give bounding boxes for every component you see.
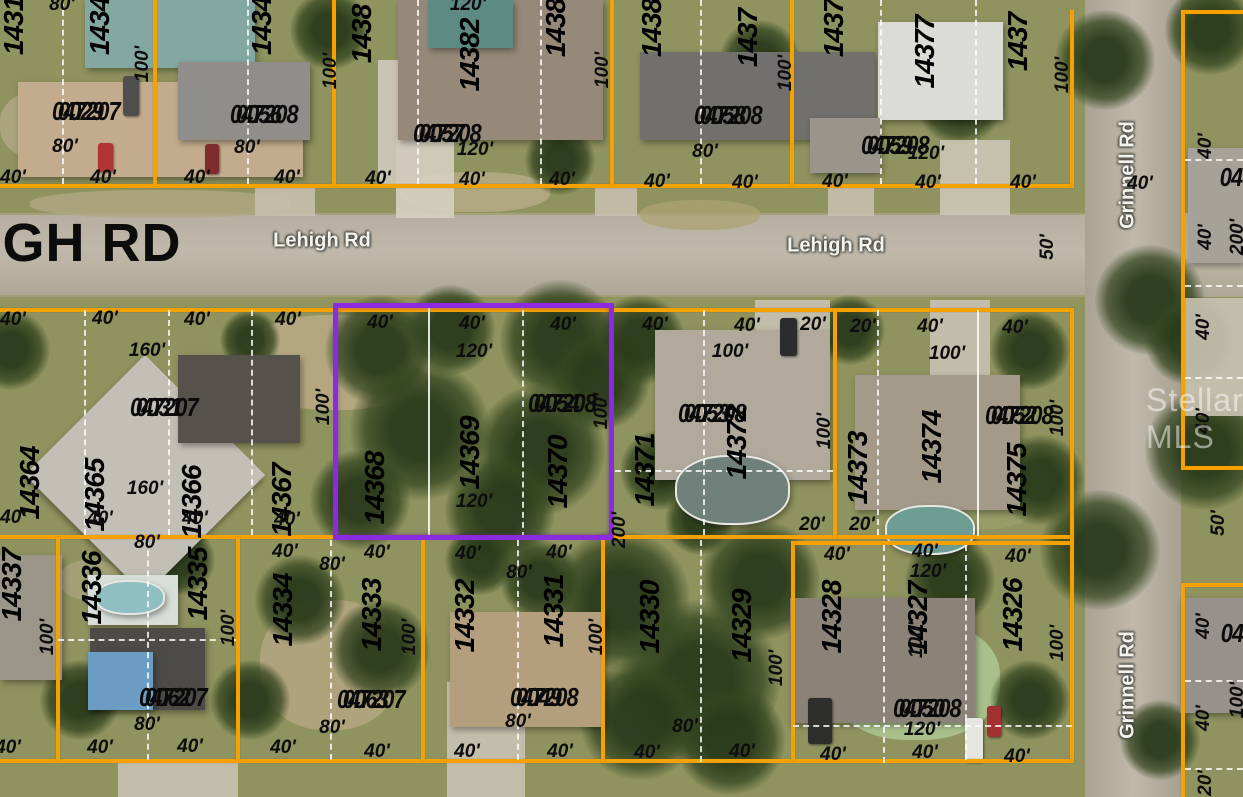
parcel-map-viewport[interactable]: GH RDLehigh RdLehigh RdGrinnell RdGrinne… <box>0 0 1243 797</box>
lot-line <box>700 540 702 762</box>
dimension-label: 40' <box>184 167 210 189</box>
dimension-label: 40' <box>274 509 300 531</box>
parcel-boundary-line <box>1181 583 1185 797</box>
dimension-label: 100' <box>766 650 788 686</box>
dimension-label: 40' <box>642 314 668 336</box>
dimension-label: 40' <box>1193 705 1215 731</box>
parcel-boundary-line <box>1183 10 1243 14</box>
dimension-label: 100' <box>313 389 335 425</box>
lot-line <box>58 639 236 641</box>
parcel-boundary-line <box>153 0 157 186</box>
scenery-item <box>780 318 797 356</box>
dimension-label: 40' <box>177 736 203 758</box>
dimension-label: 100' <box>712 341 748 363</box>
dimension-label: 100' <box>399 619 421 655</box>
dimension-label: 40' <box>1004 746 1030 768</box>
dimension-label: 40' <box>364 542 390 564</box>
lot-number-label: 1438 <box>346 5 378 63</box>
road-label: Grinnell Rd <box>1117 631 1140 739</box>
dimension-label: 40' <box>184 309 210 331</box>
dimension-label: 40' <box>275 309 301 331</box>
lot-line <box>168 310 170 535</box>
dimension-label: 20' <box>799 514 825 536</box>
lot-number-label: 14375 <box>1001 444 1033 517</box>
dimension-label: 40' <box>547 741 573 763</box>
lot-line <box>975 0 977 184</box>
lot-number-label: 14371 <box>629 434 661 507</box>
dimension-label: 100' <box>592 52 614 88</box>
dimension-label: 160' <box>129 340 165 362</box>
dimension-label: 40' <box>1195 224 1217 250</box>
lot-number-label: 14336 <box>76 552 108 625</box>
lot-number-label: 1438 <box>540 0 572 57</box>
dimension-label: 20' <box>1195 770 1217 796</box>
dimension-label: 40' <box>364 741 390 763</box>
dimension-label: 40' <box>270 737 296 759</box>
lot-line <box>1185 159 1243 161</box>
dimension-label: 80' <box>234 137 260 159</box>
parcel-boundary-line <box>610 0 614 186</box>
dimension-label: 40' <box>546 542 572 564</box>
dimension-label: 40' <box>365 168 391 190</box>
dimension-label: 40' <box>272 541 298 563</box>
dimension-label: 120' <box>910 561 946 583</box>
dimension-label: 120' <box>450 0 486 16</box>
parcel-boundary-line <box>0 184 1074 188</box>
dimension-label: 40' <box>274 167 300 189</box>
dimension-label: 40' <box>1193 314 1215 340</box>
dimension-label: 40' <box>917 316 943 338</box>
parcel-id-label-partial: 04 <box>1220 162 1243 192</box>
dimension-label: 40' <box>1005 546 1031 568</box>
dimension-label: 120' <box>456 491 492 513</box>
lot-number-label: 14368 <box>359 452 391 525</box>
lot-number-label: 1431 <box>0 0 30 55</box>
dimension-label: 80' <box>52 136 78 158</box>
lot-number-label: 14334 <box>267 574 299 647</box>
parcel-boundary-line <box>1182 583 1243 587</box>
dimension-label: 40' <box>550 314 576 336</box>
dimension-label: 40' <box>732 172 758 194</box>
scenery-item <box>640 200 760 230</box>
dimension-label: 100' <box>1052 57 1074 93</box>
lot-number-label: 1434 <box>246 0 278 55</box>
dimension-label: 40' <box>644 171 670 193</box>
dimension-label: 80' <box>506 562 532 584</box>
dimension-label: 40' <box>0 507 26 529</box>
lot-number-label: 14335 <box>182 548 214 621</box>
lot-line <box>251 310 253 535</box>
parcel-boundary-line <box>790 0 794 186</box>
dimension-label: 50' <box>1037 234 1059 260</box>
dimension-label: 120' <box>456 341 492 363</box>
parcel-boundary-line <box>236 537 240 761</box>
dimension-label: 40' <box>1002 317 1028 339</box>
dimension-label: 200' <box>609 512 631 548</box>
dimension-label: 100' <box>591 393 613 429</box>
dimension-label: 40' <box>0 737 21 759</box>
lot-number-label: 14372 <box>721 407 753 480</box>
lot-number-label: 14332 <box>449 580 481 653</box>
dimension-label: 40' <box>459 169 485 191</box>
dimension-label: 80' <box>692 141 718 163</box>
lot-number-label: 14326 <box>997 579 1029 652</box>
parcel-id-line2: 0062 <box>145 682 190 712</box>
dimension-label: 50' <box>1208 510 1230 536</box>
scenery-item <box>808 698 832 744</box>
dimension-label: 100' <box>586 619 608 655</box>
dimension-label: 80' <box>319 554 345 576</box>
lot-number-label: 1437 <box>818 0 850 57</box>
parcel-id-line2: 0063 <box>343 684 388 714</box>
scenery-item <box>118 763 238 797</box>
parcel-id-line2: 0056 <box>236 99 281 129</box>
dimension-label: 40' <box>1127 173 1153 195</box>
dimension-label: 160' <box>127 478 163 500</box>
lot-number-label: 14333 <box>356 579 388 652</box>
dimension-label: 40' <box>182 508 208 530</box>
lot-line <box>1185 377 1243 379</box>
parcel-id-line2: 0052 <box>991 400 1036 430</box>
lot-number-label: 14382 <box>454 19 486 92</box>
lot-line <box>977 310 979 536</box>
dimension-label: 40' <box>549 169 575 191</box>
lot-number-label: 1437 <box>1002 13 1034 71</box>
dimension-label: 40' <box>915 172 941 194</box>
lot-number-label: 14331 <box>538 575 570 648</box>
lot-number-label: 14328 <box>816 581 848 654</box>
parcel-boundary-line <box>1183 466 1243 470</box>
dimension-label: 100' <box>1227 682 1243 718</box>
dimension-label: 40' <box>90 167 116 189</box>
dimension-label: 80' <box>319 717 345 739</box>
scenery-item <box>255 188 315 216</box>
dimension-label: 40' <box>367 312 393 334</box>
road-label: Lehigh Rd <box>787 235 885 258</box>
dimension-label: 40' <box>454 741 480 763</box>
dimension-label: 120' <box>908 143 944 165</box>
dimension-label: 200' <box>1227 219 1243 255</box>
parcel-id-line2: 0058 <box>700 100 745 130</box>
lot-number-label: 14377 <box>909 16 941 89</box>
lot-number-label: 14329 <box>726 590 758 663</box>
lot-number-label: 14369 <box>454 417 486 490</box>
lot-line <box>1185 285 1243 287</box>
dimension-label: 100' <box>814 413 836 449</box>
scenery-item <box>210 660 290 740</box>
parcel-boundary-line <box>1070 10 1074 186</box>
dimension-label: 40' <box>734 315 760 337</box>
lot-number-label: 14373 <box>842 432 874 505</box>
lot-line <box>417 0 419 184</box>
dimension-label: 100' <box>1047 625 1069 661</box>
lot-number-label: 14337 <box>0 549 28 622</box>
dimension-label: 40' <box>1195 133 1217 159</box>
dimension-label: 40' <box>1010 172 1036 194</box>
dimension-label: 40' <box>0 167 26 189</box>
scenery-item <box>675 685 785 795</box>
dimension-label: 100' <box>906 622 928 658</box>
parcel-boundary-line <box>1070 308 1074 539</box>
dimension-label: 100' <box>37 619 59 655</box>
parcel-id-line2: 0059 <box>867 130 912 160</box>
lot-number-label: 14330 <box>634 581 666 654</box>
dimension-label: 80' <box>672 716 698 738</box>
dimension-label: 20' <box>800 314 826 336</box>
parcel-boundary-line <box>791 541 795 761</box>
lot-line <box>877 310 879 535</box>
lot-number-label: 1438 <box>636 0 668 57</box>
lot-number-label: 1434 <box>84 0 116 55</box>
parcel-boundary-line <box>1070 538 1074 761</box>
scenery-item <box>987 706 1001 737</box>
lot-number-label: 14374 <box>916 411 948 484</box>
parcel-id-line2: 0049 <box>516 682 561 712</box>
dimension-label: 120' <box>904 719 940 741</box>
parcel-id-label-partial: 04 <box>1221 618 1243 648</box>
parcel-id-line2: 0029 <box>58 96 103 126</box>
dimension-label: 40' <box>455 543 481 565</box>
dimension-label: 40' <box>87 737 113 759</box>
road-label: Lehigh Rd <box>273 230 371 253</box>
dimension-label: 80' <box>134 532 160 554</box>
dimension-label: 100' <box>132 46 154 82</box>
dimension-label: 40' <box>92 308 118 330</box>
dimension-label: 100' <box>1047 400 1069 436</box>
dimension-label: 40' <box>0 309 26 331</box>
scenery-item <box>990 660 1070 740</box>
dimension-label: 40' <box>820 744 846 766</box>
parcel-id-line2: 0031 <box>136 392 181 422</box>
lot-number-label: 14370 <box>542 436 574 509</box>
dimension-label: 120' <box>457 139 493 161</box>
dimension-label: 40' <box>822 171 848 193</box>
dimension-label: 100' <box>218 610 240 646</box>
dimension-label: 80' <box>134 714 160 736</box>
dimension-label: 40' <box>1193 613 1215 639</box>
dimension-label: 40' <box>912 742 938 764</box>
lot-line <box>965 545 967 760</box>
dimension-label: 40' <box>459 313 485 335</box>
parcel-boundary-line <box>421 538 425 761</box>
dimension-label: 20' <box>849 514 875 536</box>
lot-line <box>883 545 885 763</box>
scenery-item <box>1040 490 1160 610</box>
dimension-label: 40' <box>634 742 660 764</box>
dimension-label: 100' <box>929 343 965 365</box>
dimension-label: 40' <box>729 741 755 763</box>
road-label: GH RD <box>3 212 182 274</box>
dimension-label: 100' <box>320 53 342 89</box>
dimension-label: 20' <box>850 316 876 338</box>
dimension-label: 40' <box>87 508 113 530</box>
dimension-label: 100' <box>775 55 797 91</box>
parcel-id-line2: 0054 <box>534 388 579 418</box>
dimension-label: 40' <box>824 544 850 566</box>
dimension-label: 80' <box>505 711 531 733</box>
lot-number-label: 1437 <box>732 9 764 67</box>
watermark: Stellar MLS <box>1146 382 1243 456</box>
dimension-label: 80' <box>49 0 75 16</box>
parcel-boundary-line <box>332 0 336 186</box>
scenery-item <box>595 186 637 216</box>
dimension-label: 40' <box>912 541 938 563</box>
